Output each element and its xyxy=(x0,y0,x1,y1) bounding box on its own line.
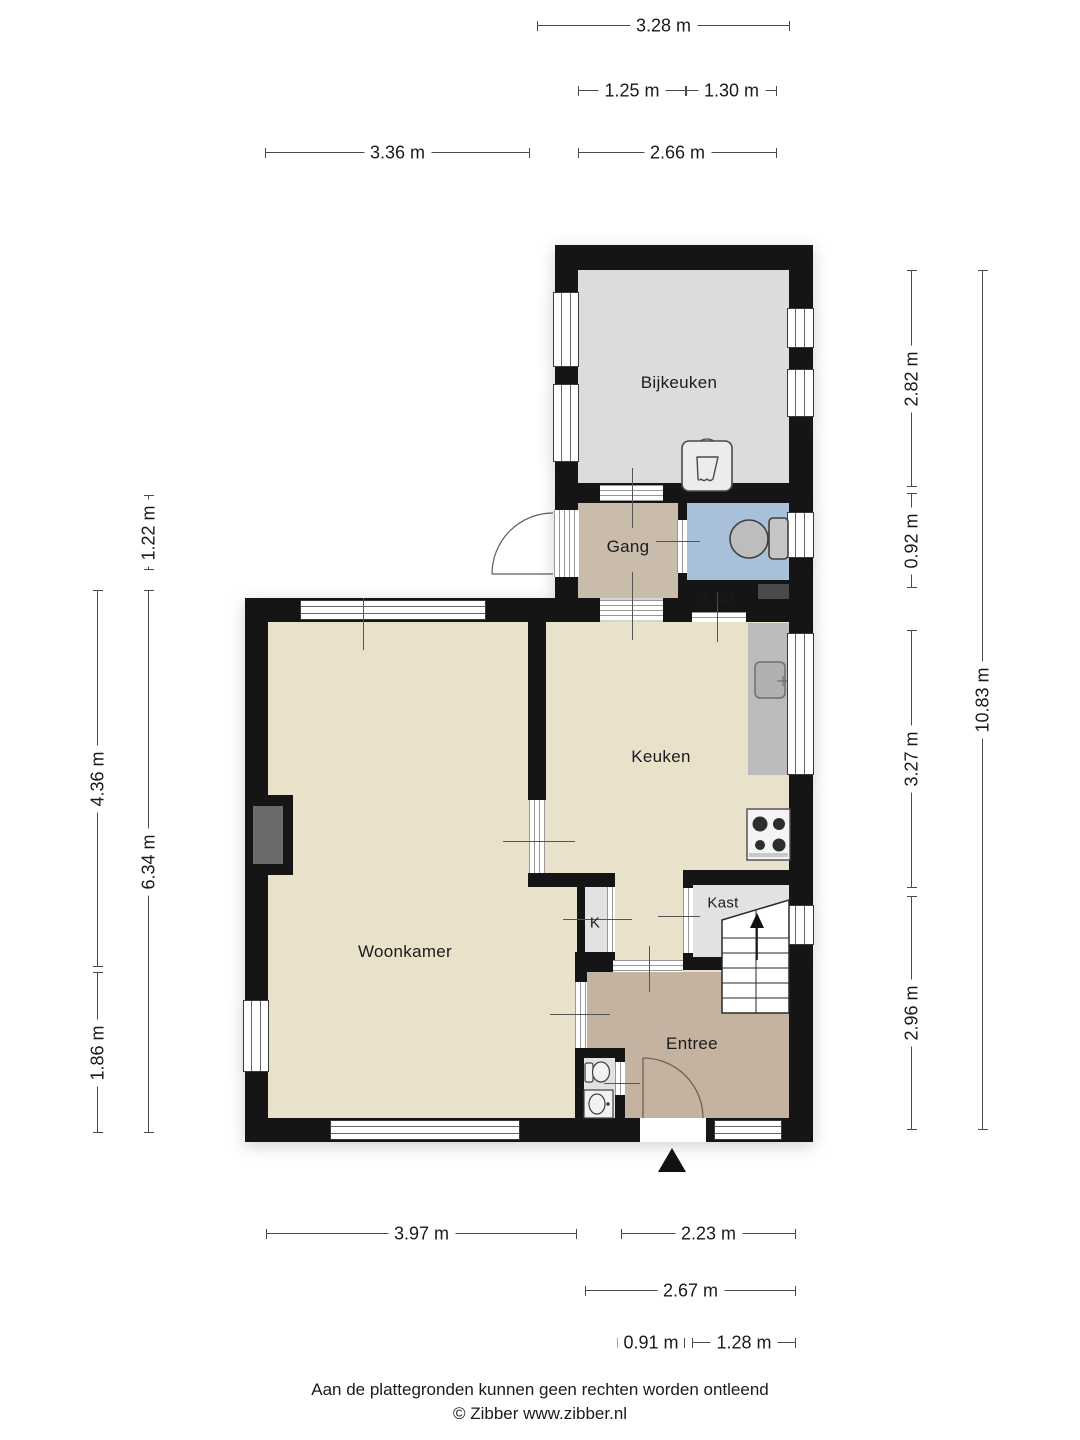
measure-tick xyxy=(363,598,364,650)
dimension-left-1: 1.22 m xyxy=(148,495,149,570)
dimension-top-5: 2.66 m xyxy=(578,152,777,153)
room-label-keuken: Keuken xyxy=(631,747,690,767)
washbasin-icon xyxy=(584,1090,613,1118)
room-label-stairs-closet: Kast xyxy=(707,895,738,912)
measure-tick xyxy=(604,1083,640,1084)
measure-tick xyxy=(632,468,633,528)
room-label-hall-closet: Kast xyxy=(702,590,733,607)
footer: Aan de plattegronden kunnen geen rechten… xyxy=(0,1378,1080,1426)
measure-tick xyxy=(656,541,700,542)
dimension-bottom-5: 1.28 m xyxy=(692,1342,796,1343)
room-label-woonkamer: Woonkamer xyxy=(358,942,452,962)
measure-tick xyxy=(550,1014,610,1015)
room-label-gang: Gang xyxy=(607,537,650,557)
dimension-bottom-1: 3.97 m xyxy=(266,1233,577,1234)
dimension-right-5: 10.83 m xyxy=(982,270,983,1130)
dimension-bottom-2: 2.23 m xyxy=(621,1233,796,1234)
fixtures-layer xyxy=(0,0,1080,1440)
measure-tick xyxy=(503,841,575,842)
front-door-arc-icon xyxy=(643,1058,703,1118)
room-label-entree: Entree xyxy=(666,1034,718,1054)
dimension-bottom-3: 2.67 m xyxy=(585,1290,796,1291)
dimension-top-1: 3.28 m xyxy=(537,25,790,26)
toilet-icon xyxy=(730,518,788,559)
measure-tick xyxy=(632,572,633,640)
measure-tick xyxy=(658,916,700,917)
door-arc-icon xyxy=(492,513,553,574)
washroom-toilet-icon xyxy=(585,1062,610,1082)
stove-icon xyxy=(747,809,790,860)
footer-disclaimer: Aan de plattegronden kunnen geen rechten… xyxy=(0,1378,1080,1402)
dimension-top-4: 3.36 m xyxy=(265,152,530,153)
dimension-left-4: 1.86 m xyxy=(97,972,98,1133)
dimension-right-2: 0.92 m xyxy=(911,493,912,588)
room-label-bijkeuken: Bijkeuken xyxy=(641,373,717,393)
room-label-k-closet: K xyxy=(590,915,600,932)
measure-tick xyxy=(649,946,650,992)
dimension-bottom-4: 0.91 m xyxy=(617,1342,685,1343)
entrance-arrow-icon xyxy=(658,1148,686,1172)
dimension-right-3: 3.27 m xyxy=(911,630,912,888)
kitchen-sink-icon xyxy=(755,662,787,698)
utility-sink-icon xyxy=(682,439,732,491)
dimension-left-3: 6.34 m xyxy=(148,590,149,1133)
floor-plan: Bijkeuken Gang Kast Keuken Woonkamer K K… xyxy=(0,0,1080,1440)
dimension-top-2: 1.25 m xyxy=(578,90,686,91)
dimension-top-3: 1.30 m xyxy=(686,90,777,91)
dimension-right-1: 2.82 m xyxy=(911,270,912,487)
dimension-left-2: 4.36 m xyxy=(97,590,98,967)
stairs-icon xyxy=(722,900,789,1013)
footer-credit: © Zibber www.zibber.nl xyxy=(0,1402,1080,1426)
dimension-right-4: 2.96 m xyxy=(911,896,912,1130)
